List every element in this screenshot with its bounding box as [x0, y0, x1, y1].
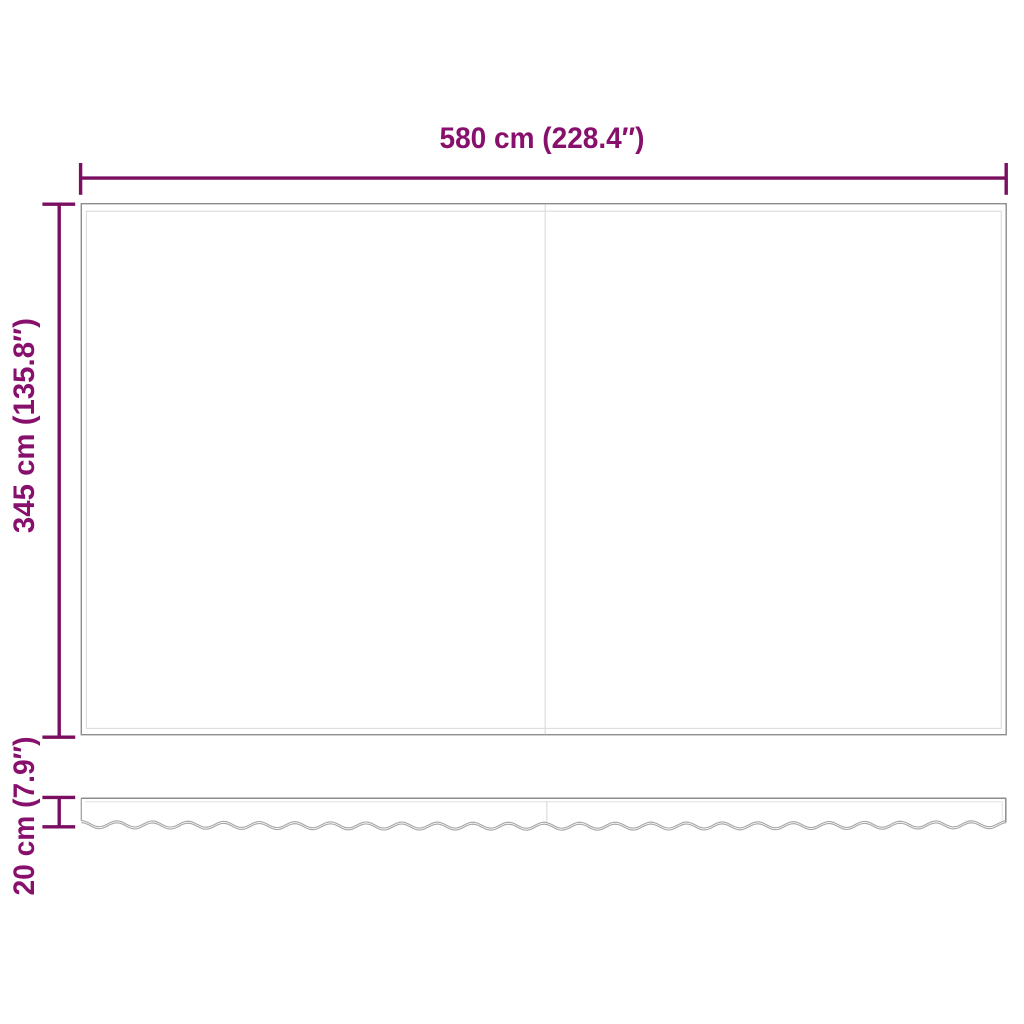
svg-text:580 cm (228.4″): 580 cm (228.4″)	[440, 122, 645, 155]
svg-text:20 cm (7.9″): 20 cm (7.9″)	[8, 737, 41, 896]
svg-text:345 cm (135.8″): 345 cm (135.8″)	[8, 318, 41, 533]
